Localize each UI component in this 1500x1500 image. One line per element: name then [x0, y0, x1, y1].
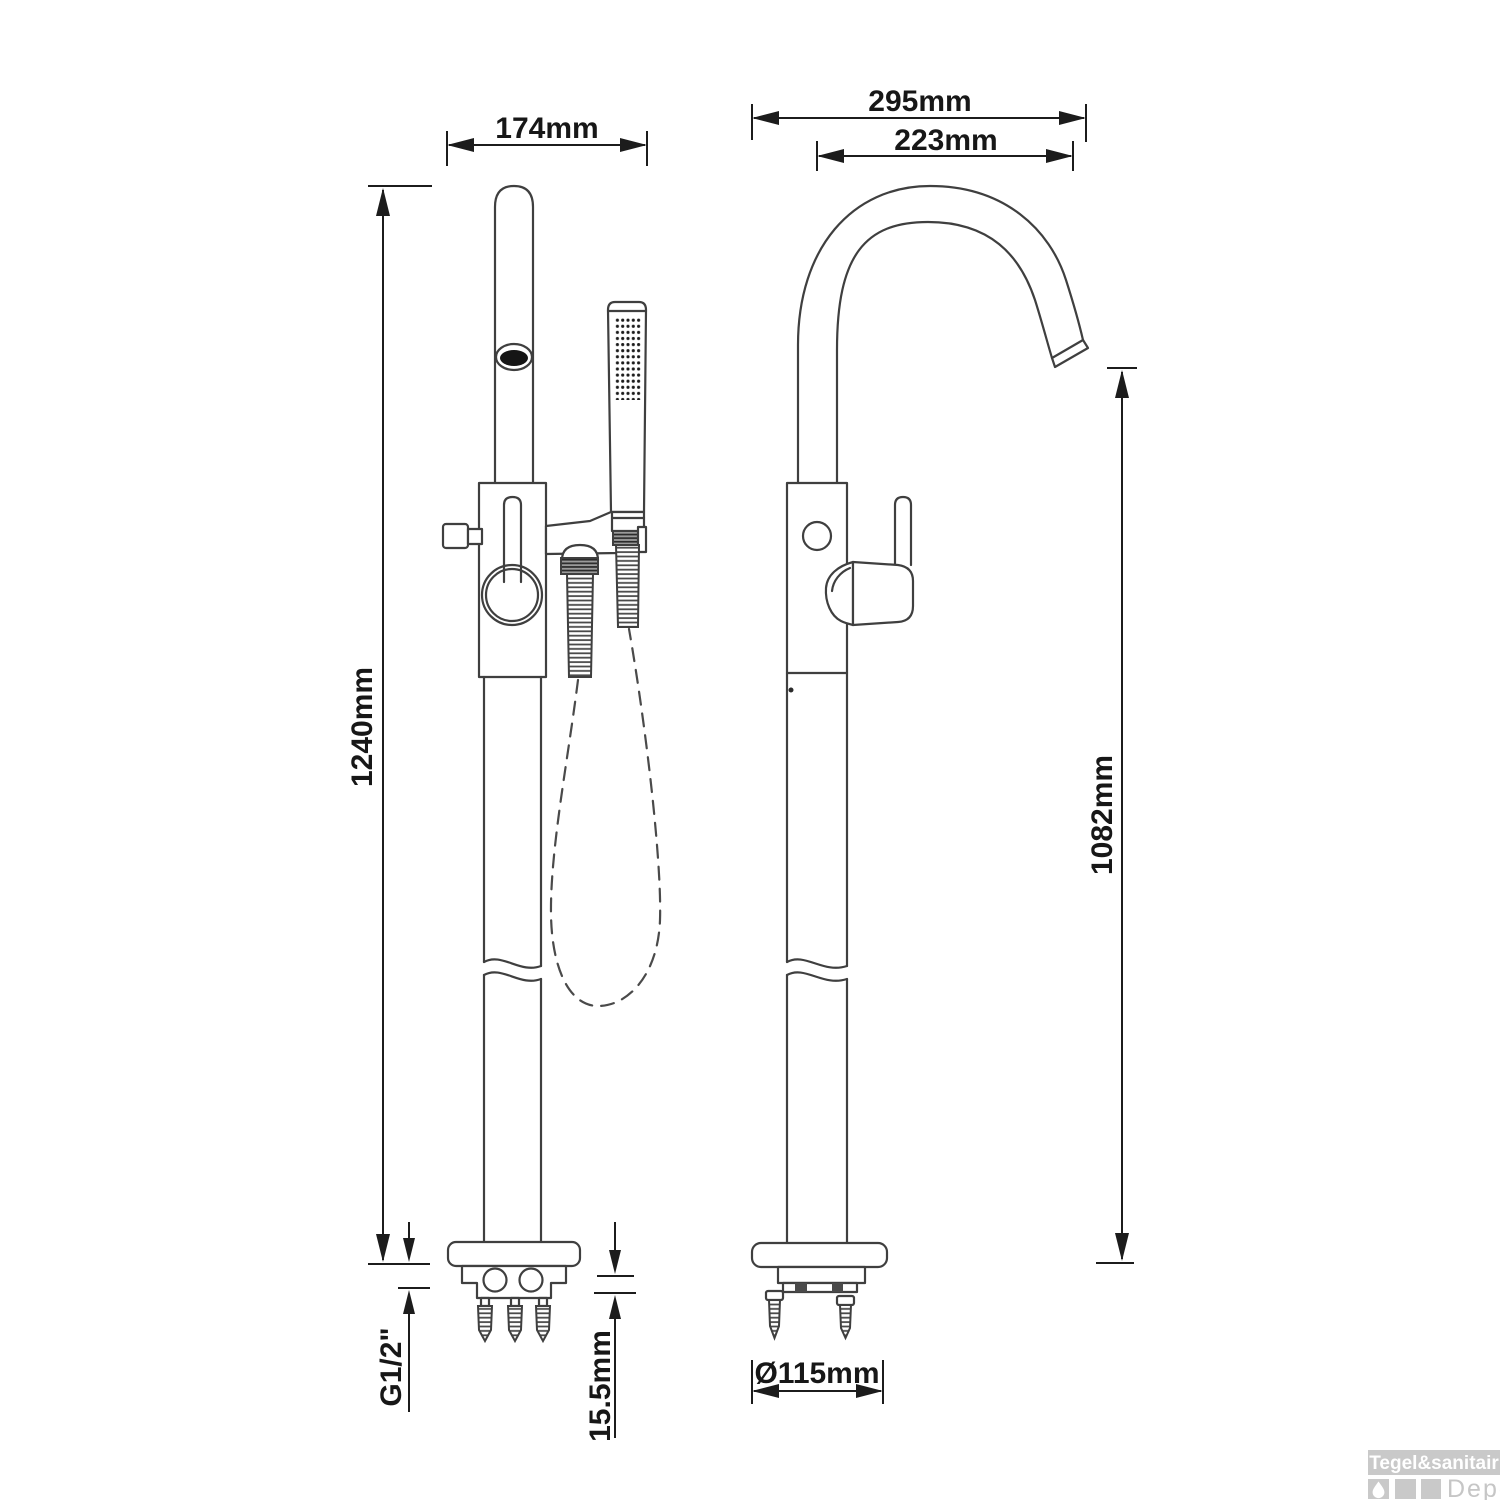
dim-label-174: 174mm [495, 112, 598, 145]
fixing-screws-side [478, 1298, 550, 1341]
fitting-ridge-band [561, 558, 598, 574]
dim-label-1240: 1240mm [346, 667, 379, 787]
mixer-body-side [479, 483, 546, 677]
gooseneck-spout [798, 186, 1088, 483]
watermark-square-2 [1395, 1479, 1416, 1499]
dimension-115mm: Ø115mm [752, 1357, 883, 1404]
diverter-knob [443, 524, 468, 548]
dim-label-295: 295mm [868, 85, 971, 118]
fixing-screws-front [766, 1291, 854, 1338]
handle-body-front [853, 562, 913, 625]
body-detail-dot [789, 688, 794, 693]
dimension-1082mm: 1082mm [1086, 368, 1137, 1263]
spout-tip-cap [1052, 340, 1088, 367]
technical-drawing-page: 174mm 1240mm G1/2" 15. [0, 0, 1500, 1500]
dim-label-15-5: 15.5mm [584, 1330, 617, 1442]
watermark-logo: Tegel&sanitair Depot [1368, 1450, 1500, 1500]
dim-label-1082: 1082mm [1086, 755, 1119, 875]
floor-base-side [448, 1242, 580, 1341]
riser-column-side [484, 677, 541, 1242]
shower-hose-loop-dashed [551, 629, 660, 1006]
lever-grip-front [895, 497, 911, 568]
diverter-knob-stem [468, 529, 482, 544]
fitting-threaded-shaft [567, 574, 593, 677]
dimension-174mm: 174mm [447, 112, 647, 166]
side-view-drawing: 174mm 1240mm G1/2" 15. [346, 112, 660, 1442]
floor-base-front [752, 1243, 887, 1338]
watermark-square-3 [1421, 1479, 1441, 1499]
watermark-suffix-text: Depot [1447, 1475, 1500, 1500]
dim-label-115: Ø115mm [754, 1357, 879, 1390]
dimension-1240mm: 1240mm [346, 186, 432, 1264]
shower-hose-corrugated [616, 545, 639, 627]
handshower-spray-face [615, 316, 641, 400]
spout-outlet-opening [500, 350, 528, 366]
dim-label-223: 223mm [894, 124, 997, 157]
watermark-brand-text: Tegel&sanitair [1369, 1453, 1499, 1474]
front-view-drawing: 295mm 223mm 1082mm Ø115mm [752, 85, 1137, 1404]
dim-label-g12: G1/2" [375, 1327, 408, 1406]
faucet-dimension-diagram: 174mm 1240mm G1/2" 15. [0, 0, 1500, 1500]
riser-column-front [787, 673, 847, 1243]
dimension-15-5mm: 15.5mm [584, 1222, 636, 1442]
spout-tube-side [495, 186, 533, 483]
dimension-223mm: 223mm [817, 124, 1073, 171]
